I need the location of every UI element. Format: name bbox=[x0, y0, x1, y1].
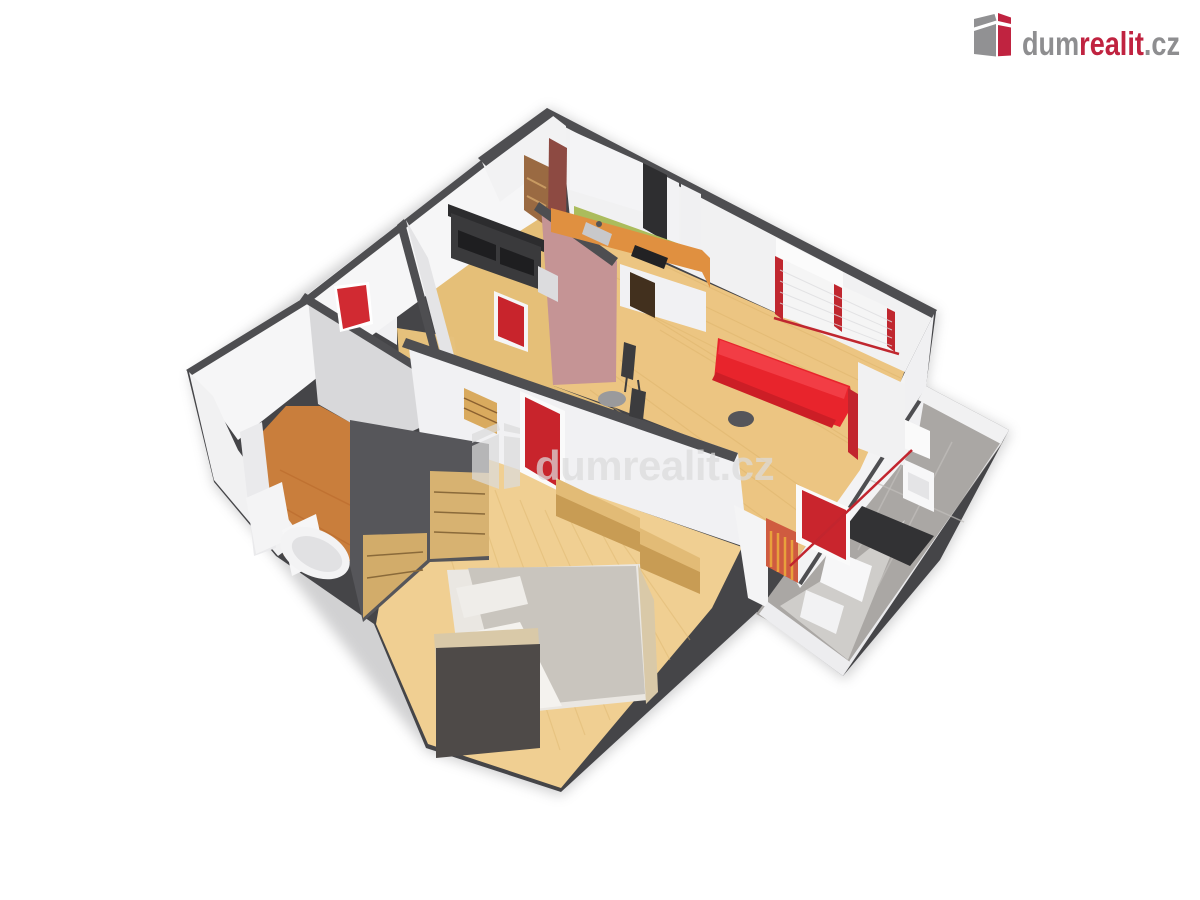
svg-text:dumrealit.cz: dumrealit.cz bbox=[535, 442, 774, 489]
svg-text:dumrealit.cz: dumrealit.cz bbox=[1022, 25, 1180, 62]
